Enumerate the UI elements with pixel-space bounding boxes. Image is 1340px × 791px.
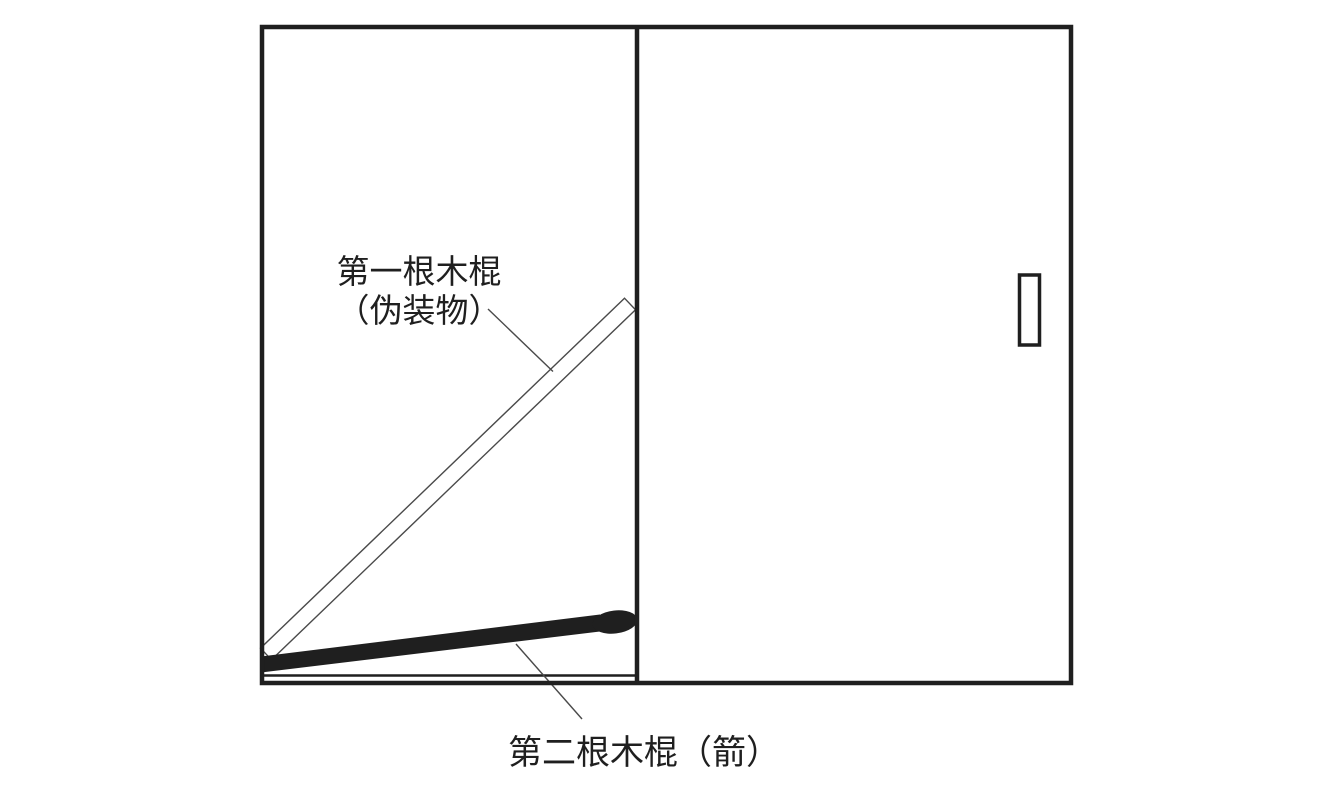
first-stick-label: 第一根木棍 （伪装物） <box>330 252 508 330</box>
panels-background <box>262 27 1071 683</box>
second-stick-label: 第二根木棍（箭） <box>508 733 780 773</box>
diagram-page: 第一根木棍 （伪装物） 第二根木棍（箭） <box>0 0 1340 791</box>
first-stick-label-line2: （伪装物） <box>330 291 508 330</box>
door-handle <box>1020 275 1040 345</box>
diagram-canvas <box>0 0 1340 791</box>
first-stick-label-line1: 第一根木棍 <box>330 252 508 291</box>
